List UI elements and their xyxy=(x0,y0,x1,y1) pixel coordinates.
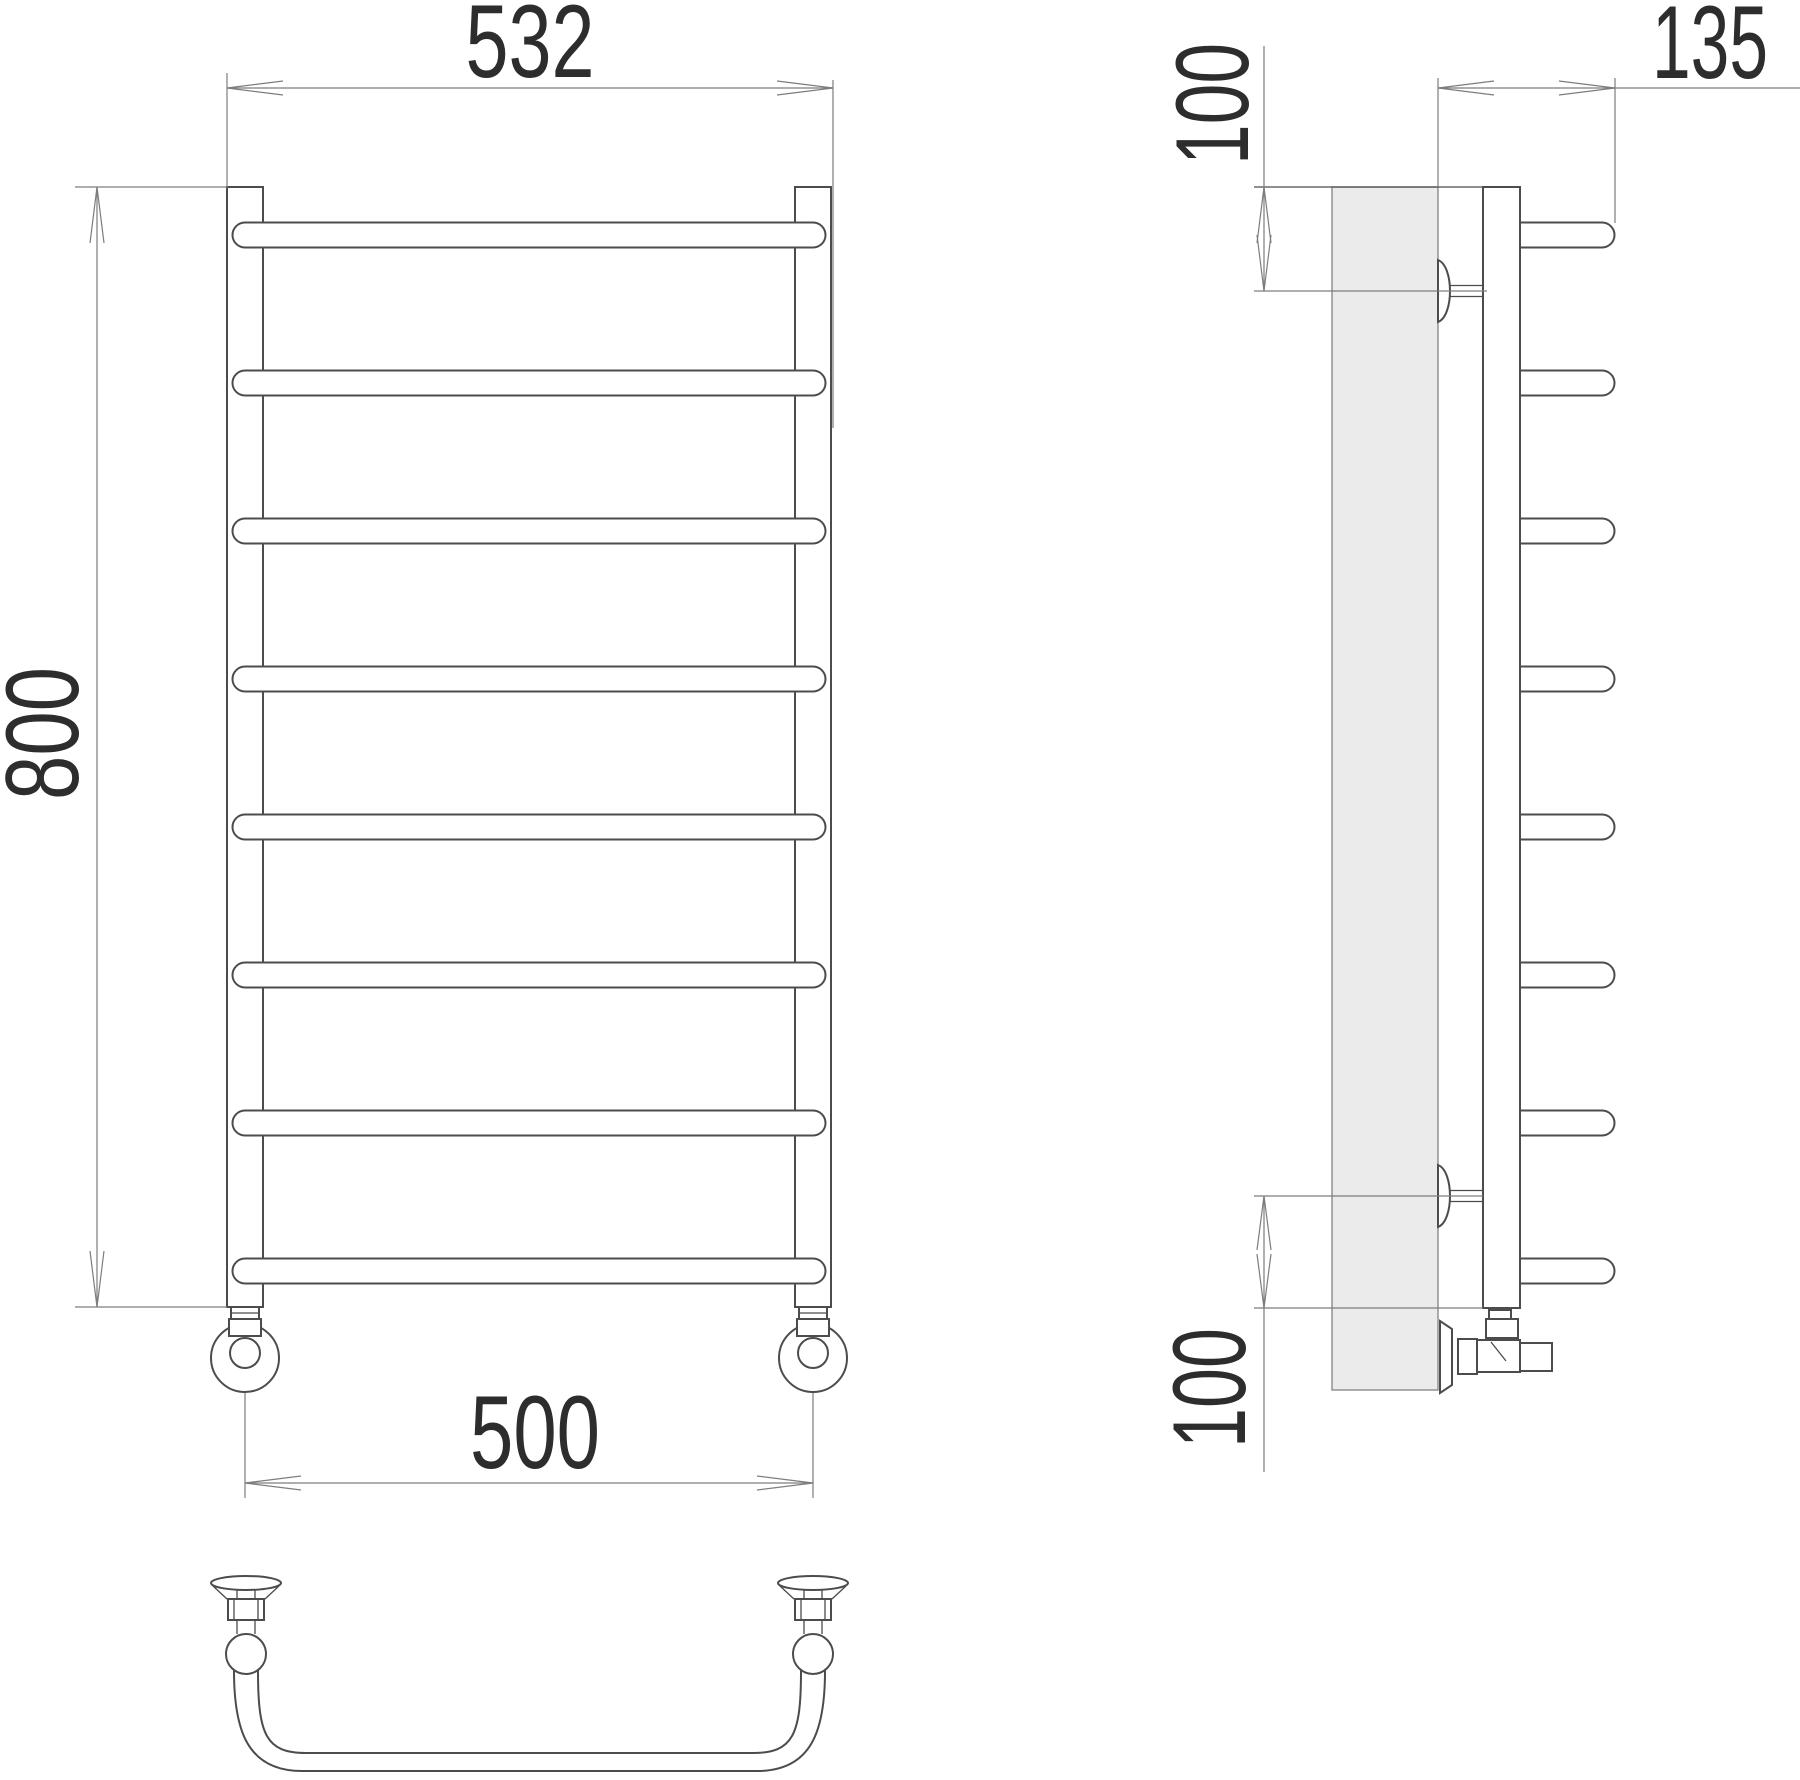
rung xyxy=(233,963,826,988)
bottom-bracket-right xyxy=(778,1576,848,1620)
front-view: 532 800 500 xyxy=(0,0,847,1498)
rung-stub xyxy=(1520,519,1615,544)
connector xyxy=(1458,1339,1477,1374)
bottom-view xyxy=(211,1576,848,1771)
nut xyxy=(797,1319,829,1336)
rung xyxy=(233,1259,826,1284)
side-rungs xyxy=(1520,223,1615,1284)
rung xyxy=(233,1111,826,1136)
rung-stub xyxy=(1520,667,1615,692)
side-view: 135 100 100 xyxy=(1152,0,1800,1472)
rung xyxy=(233,815,826,840)
rung-stub xyxy=(1520,1259,1615,1284)
rung-stub xyxy=(1520,371,1615,396)
tube-end xyxy=(793,1634,833,1674)
wall-escutcheon xyxy=(1440,1321,1452,1393)
front-rungs xyxy=(233,223,826,1284)
rung-stub xyxy=(1520,223,1615,248)
curved-bar xyxy=(234,1666,825,1771)
dim-front-height-label: 800 xyxy=(0,667,101,800)
side-tube xyxy=(1483,187,1520,1308)
dim-side-depth-label: 135 xyxy=(1652,0,1768,101)
dim-pipe-spacing-label: 500 xyxy=(470,1375,600,1491)
front-left-tube xyxy=(227,187,263,1307)
front-left-valve xyxy=(211,1307,279,1498)
pipe-bore-circle xyxy=(798,1338,828,1368)
dim-front-height: 800 xyxy=(0,187,227,1307)
pipe-bore-circle xyxy=(230,1338,260,1368)
dim-front-width-label: 532 xyxy=(466,0,595,100)
rung-stub xyxy=(1520,815,1615,840)
drawing-canvas: 532 800 500 xyxy=(0,0,1800,1780)
nut xyxy=(1486,1319,1518,1338)
bracket-flange xyxy=(778,1576,848,1590)
rung xyxy=(233,223,826,248)
dim-side-bottom-offset-label: 100 xyxy=(1152,1328,1268,1448)
bracket-flange xyxy=(211,1576,281,1590)
dim-side-top-offset-label: 100 xyxy=(1155,43,1271,165)
rung-stub xyxy=(1520,963,1615,988)
wall-section xyxy=(1332,187,1438,1390)
dim-pipe-spacing: 500 xyxy=(245,1375,813,1491)
tube-end xyxy=(226,1634,266,1674)
side-valve xyxy=(1440,1310,1552,1393)
rung xyxy=(233,371,826,396)
bottom-bracket-left xyxy=(211,1576,281,1620)
front-right-tube xyxy=(795,187,831,1307)
front-right-valve xyxy=(779,1307,847,1498)
technical-drawing: 532 800 500 xyxy=(0,0,1800,1780)
rung xyxy=(233,519,826,544)
adapter xyxy=(1489,1310,1511,1319)
valve-body xyxy=(1477,1340,1520,1372)
rung xyxy=(233,667,826,692)
rung-stub xyxy=(1520,1111,1615,1136)
nut xyxy=(229,1319,261,1336)
valve-outlet xyxy=(1520,1343,1552,1371)
dim-front-width: 532 xyxy=(227,0,833,187)
